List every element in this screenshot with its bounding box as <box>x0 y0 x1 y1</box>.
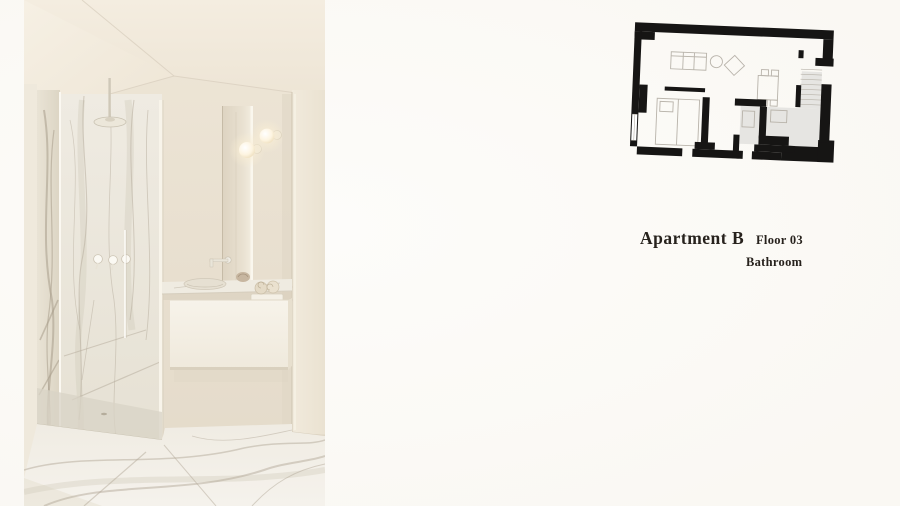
floor-label: Floor 03 <box>756 233 803 248</box>
plan-dining-table <box>757 75 778 100</box>
plan-round-table <box>710 55 723 67</box>
shower-marble-wall <box>60 94 162 440</box>
shower-door-handle <box>124 230 126 338</box>
room-label: Bathroom <box>746 255 802 270</box>
marble-floor <box>24 424 325 506</box>
sink <box>184 279 226 290</box>
door-panel <box>289 90 325 436</box>
vanity-cabinet <box>170 298 292 382</box>
floor-plan-graphic <box>628 20 842 165</box>
floor-plan <box>628 20 842 165</box>
lamp-bulb-icon <box>239 142 255 158</box>
plan-bathroom-highlight <box>739 69 822 147</box>
plan-square-table <box>724 55 745 76</box>
bathroom-render-graphic <box>24 0 325 506</box>
lamp-bulb-icon <box>260 129 275 144</box>
soap-object <box>236 272 250 282</box>
bathroom-render <box>24 0 325 506</box>
apartment-title: Apartment B <box>640 228 744 249</box>
presentation-slide: Apartment B Floor 03 Bathroom <box>0 0 900 506</box>
plan-sofa <box>671 52 707 70</box>
